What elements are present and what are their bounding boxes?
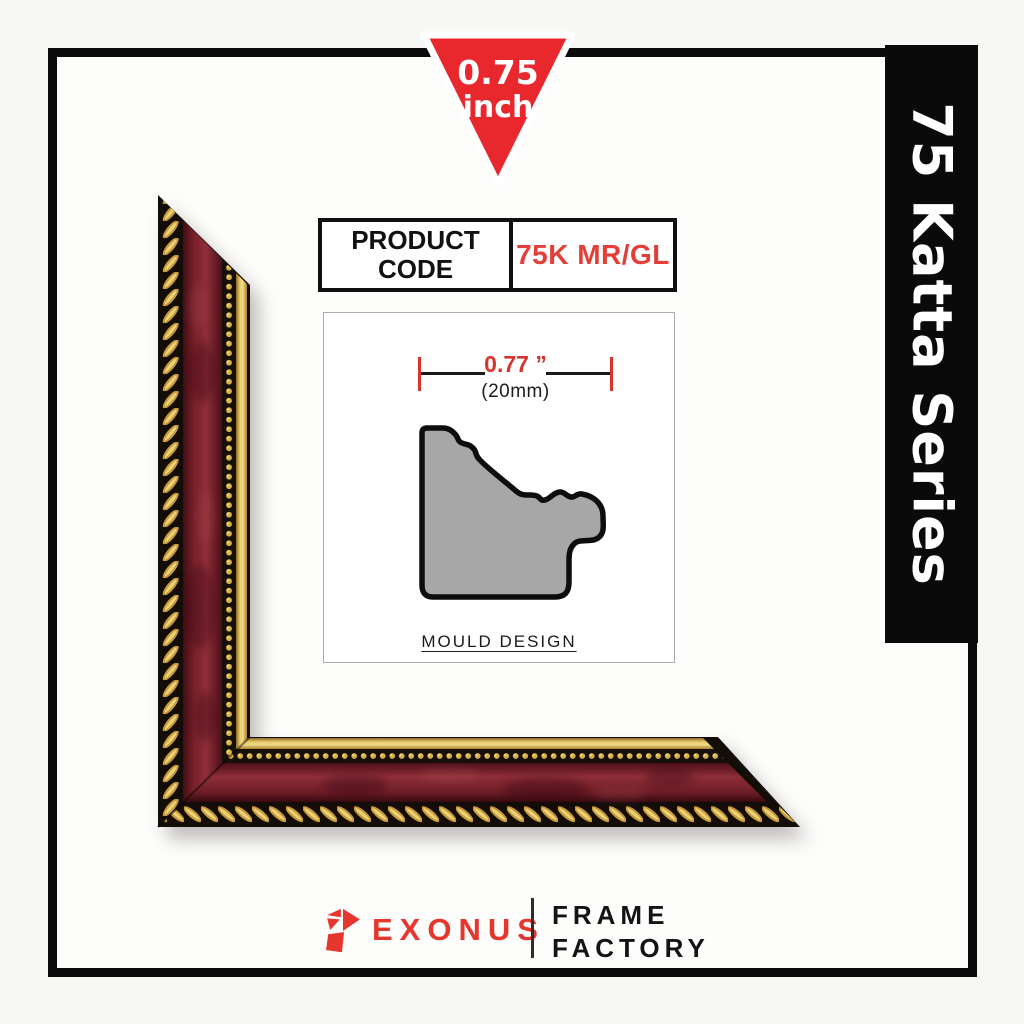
exonus-gem-icon: [325, 905, 361, 955]
catalog-page: 0.75 inch 75 Katta Series PRODUCT CODE 7…: [0, 0, 1024, 1024]
brand-divider: [531, 898, 534, 958]
brand-tagline: FRAME FACTORY: [552, 899, 710, 965]
brand-tagline-line1: FRAME: [552, 899, 710, 932]
brand-name: EXONUS: [372, 912, 545, 948]
brand-tagline-line2: FACTORY: [552, 932, 710, 965]
brand-footer: EXONUS FRAME FACTORY: [0, 0, 1024, 1024]
